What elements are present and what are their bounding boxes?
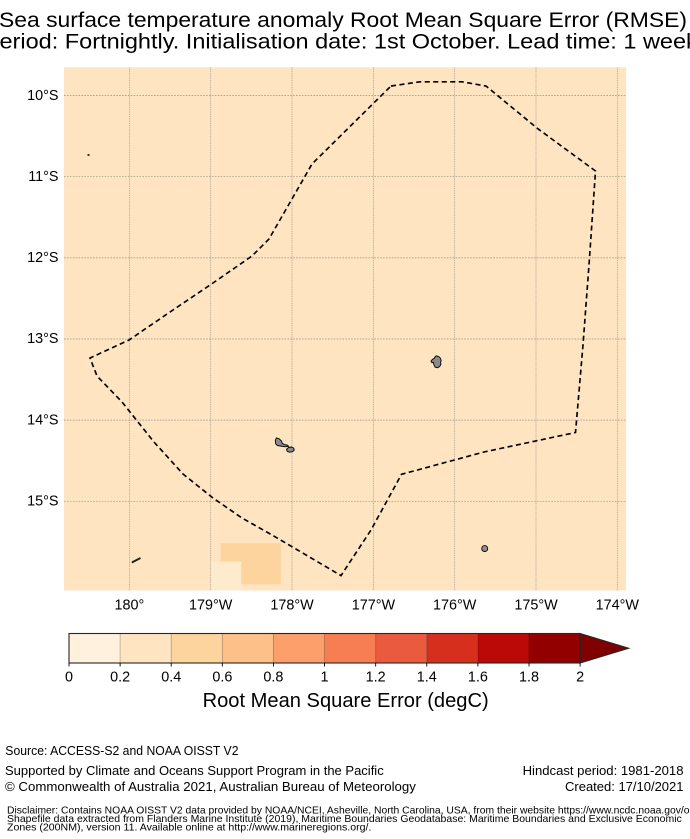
svg-text:15°S: 15°S — [27, 494, 58, 510]
svg-text:0.8: 0.8 — [263, 670, 283, 686]
svg-text:178°W: 178°W — [270, 597, 314, 613]
svg-text:Sea surface temperature anomal: Sea surface temperature anomaly Root Mea… — [0, 8, 687, 32]
svg-text:13°S: 13°S — [27, 331, 58, 347]
svg-text:1.2: 1.2 — [366, 670, 386, 686]
svg-text:2: 2 — [576, 670, 584, 686]
svg-text:Zones (200NM), version 11. Ava: Zones (200NM), version 11. Available onl… — [7, 822, 371, 833]
svg-text:0: 0 — [65, 670, 73, 686]
svg-text:174°W: 174°W — [596, 597, 640, 613]
svg-text:10°S: 10°S — [27, 88, 58, 104]
svg-text:Period: Fortnightly. Initialis: Period: Fortnightly. Initialisation date… — [0, 30, 690, 54]
svg-text:1.8: 1.8 — [519, 670, 539, 686]
svg-text:Root Mean Square Error (degC): Root Mean Square Error (degC) — [203, 690, 489, 712]
svg-text:Created: 17/10/2021: Created: 17/10/2021 — [565, 779, 684, 794]
svg-text:Hindcast period: 1981-2018: Hindcast period: 1981-2018 — [523, 763, 684, 778]
svg-text:0.6: 0.6 — [212, 670, 232, 686]
svg-text:177°W: 177°W — [352, 597, 396, 613]
svg-text:1: 1 — [321, 670, 329, 686]
svg-text:14°S: 14°S — [27, 412, 58, 428]
svg-text:Supported by Climate and Ocean: Supported by Climate and Oceans Support … — [5, 763, 384, 778]
svg-text:180°: 180° — [115, 597, 145, 613]
svg-text:1.6: 1.6 — [468, 670, 488, 686]
svg-text:0.2: 0.2 — [110, 670, 130, 686]
svg-text:0.4: 0.4 — [161, 670, 181, 686]
svg-text:12°S: 12°S — [27, 250, 58, 266]
svg-text:179°W: 179°W — [189, 597, 233, 613]
svg-text:176°W: 176°W — [433, 597, 477, 613]
svg-text:Source: ACCESS-S2 and NOAA OIS: Source: ACCESS-S2 and NOAA OISST V2 — [5, 743, 238, 758]
svg-text:1.4: 1.4 — [417, 670, 437, 686]
svg-text:© Commonwealth of Australia 20: © Commonwealth of Australia 2021, Austra… — [5, 779, 416, 794]
svg-text:175°W: 175°W — [514, 597, 558, 613]
svg-text:11°S: 11°S — [28, 169, 58, 185]
